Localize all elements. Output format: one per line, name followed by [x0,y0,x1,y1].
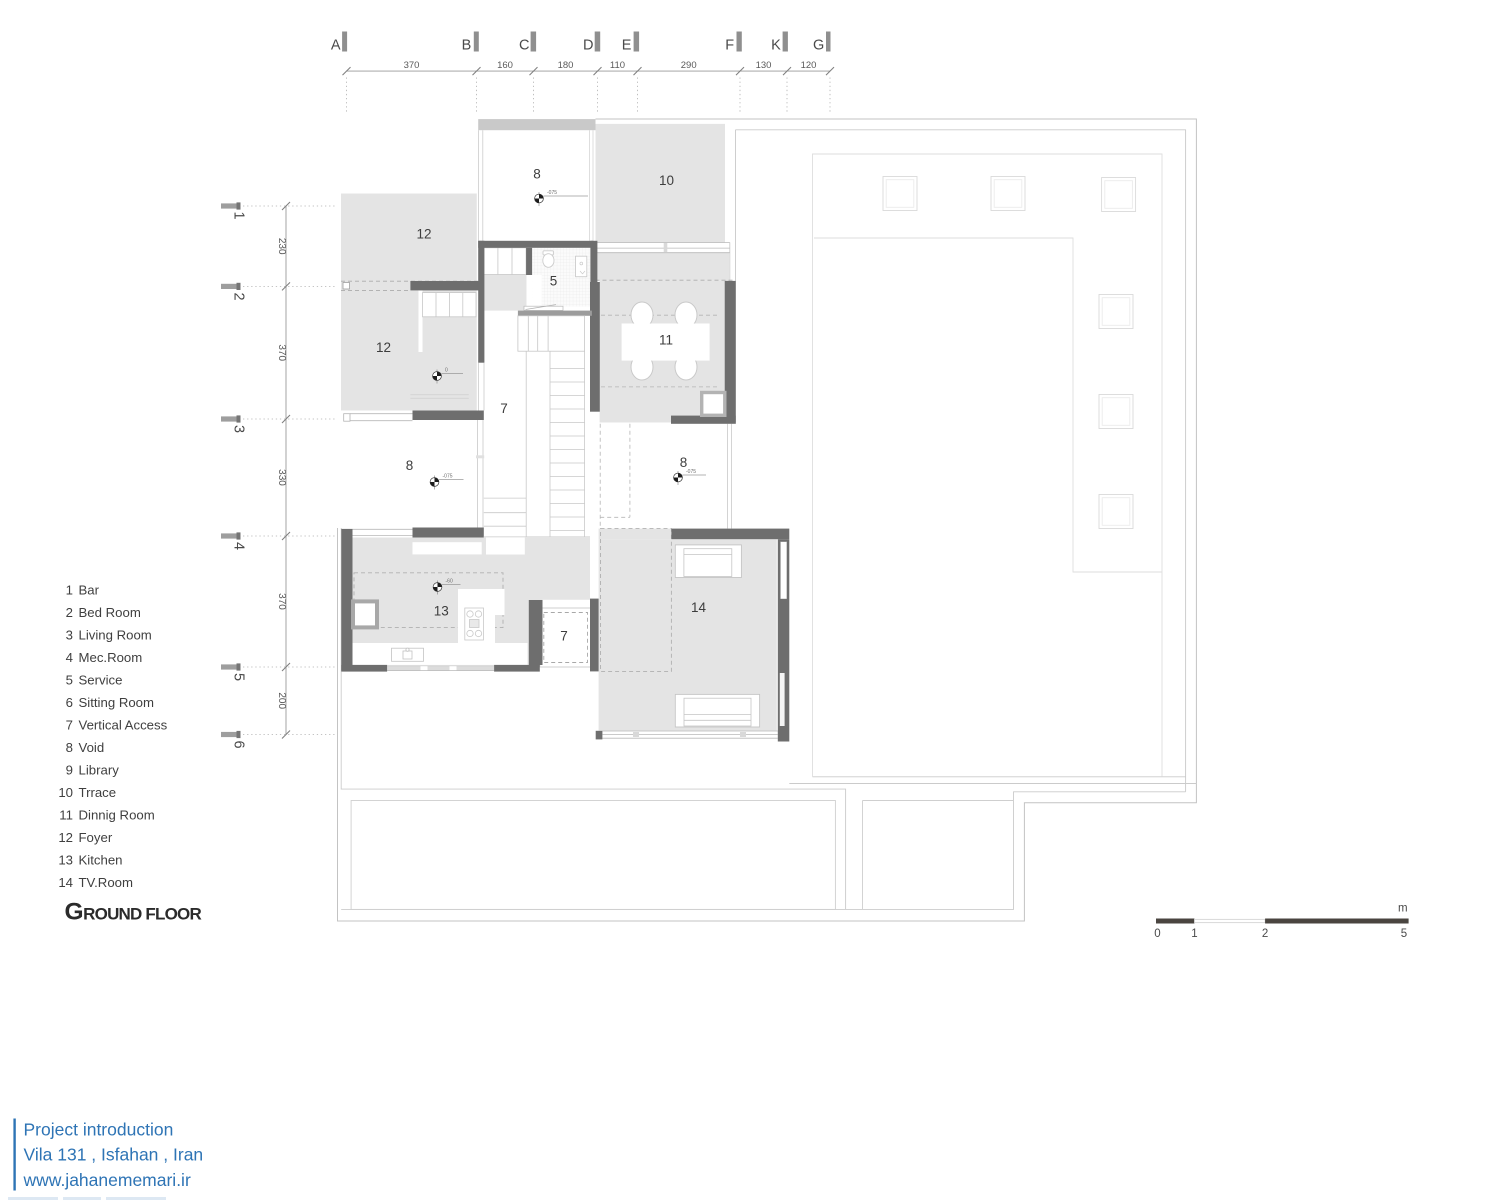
svg-text:10: 10 [58,785,73,800]
svg-text:8: 8 [66,740,73,755]
svg-text:5: 5 [231,673,247,681]
svg-text:K: K [771,38,781,54]
svg-text:370: 370 [276,344,287,361]
svg-text:14: 14 [691,600,707,615]
svg-text:C: C [519,38,529,54]
svg-text:370: 370 [404,60,420,71]
svg-text:3: 3 [66,628,73,643]
svg-text:330: 330 [276,469,287,486]
svg-text:12: 12 [376,340,391,355]
svg-text:8: 8 [406,458,414,473]
svg-text:Vila 131 , Isfahan , Iran: Vila 131 , Isfahan , Iran [24,1145,204,1165]
svg-text:Mec.Room: Mec.Room [79,650,143,665]
svg-text:-075: -075 [547,190,557,196]
svg-text:0: 0 [1154,928,1160,940]
svg-text:D: D [583,38,593,54]
svg-text:9: 9 [66,763,73,778]
svg-text:Living Room: Living Room [79,628,152,643]
svg-text:7: 7 [66,718,73,733]
svg-text:G: G [813,38,824,54]
svg-text:5: 5 [66,673,73,688]
svg-text:8: 8 [533,167,541,182]
svg-text:TV.Room: TV.Room [79,875,133,890]
svg-text:2: 2 [1262,928,1268,940]
svg-text:0: 0 [445,368,448,374]
svg-text:F: F [725,38,734,54]
svg-text:230: 230 [276,238,287,255]
svg-text:4: 4 [66,650,73,665]
svg-text:11: 11 [59,808,73,823]
svg-text:1: 1 [66,583,73,598]
svg-text:370: 370 [276,593,287,610]
svg-text:4: 4 [231,542,247,550]
svg-text:B: B [462,38,472,54]
svg-text:3: 3 [231,425,247,433]
svg-text:Bed Room: Bed Room [79,605,141,620]
svg-text:Service: Service [79,673,123,688]
svg-text:8: 8 [680,455,688,470]
svg-text:120: 120 [801,60,817,71]
svg-text:2: 2 [66,605,73,620]
svg-text:11: 11 [659,333,673,348]
svg-text:6: 6 [66,695,73,710]
svg-text:13: 13 [58,853,73,868]
svg-text:1: 1 [231,211,247,219]
svg-text:160: 160 [497,60,513,71]
svg-text:6: 6 [231,740,247,748]
svg-text:Vertical Access: Vertical Access [79,718,168,733]
svg-text:A: A [331,38,341,54]
svg-text:12: 12 [58,830,73,845]
svg-text:www.jahanememari.ir: www.jahanememari.ir [23,1170,191,1190]
svg-text:2: 2 [231,292,247,300]
svg-text:-60: -60 [446,579,453,585]
svg-text:180: 180 [558,60,574,71]
svg-text:5: 5 [1401,928,1407,940]
svg-text:7: 7 [500,401,508,416]
svg-text:Kitchen: Kitchen [79,853,123,868]
svg-text:Foyer: Foyer [79,830,113,845]
svg-text:130: 130 [756,60,772,71]
svg-text:Library: Library [79,763,120,778]
svg-text:Sitting Room: Sitting Room [79,695,155,710]
svg-text:200: 200 [276,692,287,709]
svg-text:1: 1 [1191,928,1197,940]
svg-text:5: 5 [550,274,558,289]
svg-text:13: 13 [434,604,449,619]
svg-text:10: 10 [659,173,674,188]
svg-text:110: 110 [610,60,625,71]
svg-text:m: m [1398,903,1408,915]
svg-text:7: 7 [560,629,568,644]
svg-text:Dinnig Room: Dinnig Room [79,808,155,823]
svg-text:Bar: Bar [79,583,100,598]
svg-text:Void: Void [79,740,105,755]
svg-text:Project introduction: Project introduction [24,1120,174,1140]
svg-text:14: 14 [58,875,73,890]
svg-text:Trrace: Trrace [79,785,117,800]
svg-text:-075: -075 [443,474,453,480]
svg-text:E: E [622,38,632,54]
svg-text:290: 290 [681,60,697,71]
svg-text:12: 12 [416,227,431,242]
svg-text:-075: -075 [686,469,696,475]
